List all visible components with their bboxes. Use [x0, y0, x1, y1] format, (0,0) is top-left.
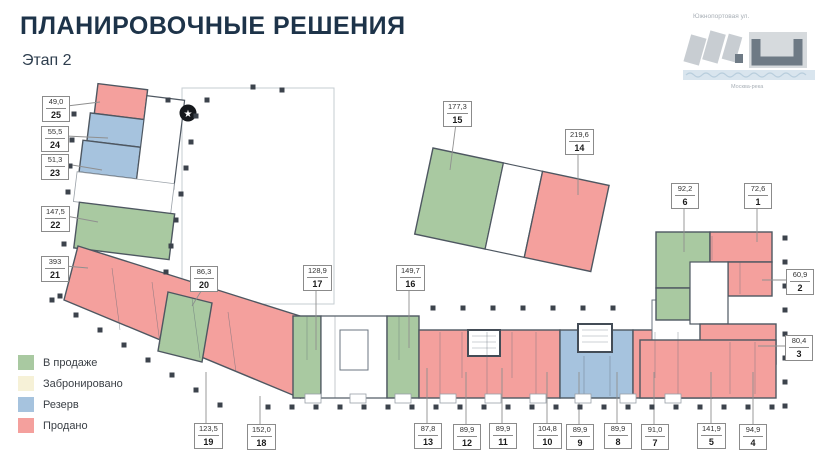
unit-callout-6[interactable]: 92,26: [671, 183, 699, 209]
column-dot: [554, 405, 559, 410]
column-dot: [386, 405, 391, 410]
legend-swatch: [18, 418, 34, 433]
column-dot: [338, 405, 343, 410]
column-dot: [458, 405, 463, 410]
column-dot: [169, 244, 174, 249]
unit-callout-18[interactable]: 152,018: [247, 424, 276, 450]
balcony: [350, 394, 366, 403]
unit-callout-25[interactable]: 49,025: [42, 96, 70, 122]
unit-region-2[interactable]: [728, 262, 772, 296]
column-dot: [66, 190, 71, 195]
unit-number: 5: [701, 436, 722, 447]
unit-callout-4[interactable]: 94,94: [739, 424, 767, 450]
column-dot: [251, 85, 256, 90]
unit-area: 177,3: [447, 103, 468, 114]
left-wing: [68, 82, 189, 259]
column-dot: [179, 192, 184, 197]
column-dot: [205, 98, 210, 103]
column-dot: [783, 236, 788, 241]
column-dot: [783, 404, 788, 409]
unit-number: 3: [789, 348, 809, 359]
unit-area: 87,8: [418, 425, 438, 436]
column-dot: [783, 260, 788, 265]
column-dot: [578, 405, 583, 410]
balcony: [440, 394, 456, 403]
location-minimap: Южнопортовая ул. Москва-река: [683, 4, 815, 92]
column-dot: [58, 294, 63, 299]
column-dot: [174, 218, 179, 223]
unit-number: 19: [198, 436, 219, 447]
compass-icon: ★: [180, 105, 197, 122]
column-dot: [783, 380, 788, 385]
unit-region-20[interactable]: [158, 292, 212, 362]
legend-item: Продано: [18, 415, 123, 436]
column-dot: [551, 306, 556, 311]
legend-swatch: [18, 355, 34, 370]
column-dot: [166, 98, 171, 103]
unit-number: 7: [645, 437, 665, 448]
unit-area: 60,9: [790, 271, 810, 282]
unit-region-16[interactable]: [387, 316, 419, 398]
unit-callout-24[interactable]: 55,524: [41, 126, 69, 152]
unit-region-4-5[interactable]: [640, 340, 776, 398]
balcony: [305, 394, 321, 403]
stairwell: [578, 324, 612, 352]
unit-number: 2: [790, 282, 810, 293]
column-dot: [194, 388, 199, 393]
unit-area: 80,4: [789, 337, 809, 348]
unit-callout-23[interactable]: 51,323: [41, 154, 69, 180]
column-dot: [184, 166, 189, 171]
column-dot: [218, 403, 223, 408]
column-dot: [62, 242, 67, 247]
building-unit-marker: [735, 54, 743, 63]
unit-number: 23: [45, 167, 65, 178]
column-dot: [461, 306, 466, 311]
unit-callout-13[interactable]: 87,813: [414, 423, 442, 449]
stairwell: [468, 330, 500, 356]
unit-number: 10: [537, 436, 558, 447]
unit-area: 152,0: [251, 426, 272, 437]
unit-callout-11[interactable]: 89,911: [489, 423, 517, 449]
column-dot: [530, 405, 535, 410]
unit-number: 21: [45, 269, 65, 280]
river-label: Москва-река: [731, 84, 764, 90]
column-dot: [74, 313, 79, 318]
unit-area: 55,5: [45, 128, 65, 139]
unit-callout-16[interactable]: 149,716: [396, 265, 425, 291]
unit-callout-21[interactable]: 39321: [41, 256, 69, 282]
unit-area: 393: [45, 258, 65, 269]
unit-callout-8[interactable]: 89,98: [604, 423, 632, 449]
legend-swatch: [18, 376, 34, 391]
unit-number: 25: [46, 109, 66, 120]
column-dot: [70, 138, 75, 143]
column-dot: [290, 405, 295, 410]
column-dot: [611, 306, 616, 311]
unit-number: 8: [608, 436, 628, 447]
legend-label: В продаже: [43, 357, 97, 369]
unit-number: 22: [45, 219, 66, 230]
column-dot: [581, 306, 586, 311]
column-dot: [362, 405, 367, 410]
column-dot: [431, 306, 436, 311]
unit-callout-3[interactable]: 80,43: [785, 335, 813, 361]
column-dot: [626, 405, 631, 410]
column-dot: [434, 405, 439, 410]
unit-area: 123,5: [198, 425, 219, 436]
building-cluster-left: [683, 30, 742, 65]
unit-area: 94,9: [743, 426, 763, 437]
column-dot: [698, 405, 703, 410]
column-dot: [674, 405, 679, 410]
svg-text:★: ★: [184, 109, 193, 120]
balcony: [530, 394, 546, 403]
unit-callout-20[interactable]: 86,320: [190, 266, 218, 292]
legend-swatch: [18, 397, 34, 412]
unit-number: 1: [748, 196, 768, 207]
column-dot: [98, 328, 103, 333]
column-dot: [189, 140, 194, 145]
unit-area: 72,6: [748, 185, 768, 196]
column-dot: [746, 405, 751, 410]
unit-area: 51,3: [45, 156, 65, 167]
unit-number: 16: [400, 278, 421, 289]
unit-number: 18: [251, 437, 272, 448]
unit-callout-17[interactable]: 128,917: [303, 265, 332, 291]
column-dot: [491, 306, 496, 311]
balcony: [395, 394, 411, 403]
unit-area: 89,9: [457, 426, 477, 437]
unit-area: 89,9: [493, 425, 513, 436]
legend-item: Забронировано: [18, 373, 123, 394]
status-legend: В продажеЗабронированоРезервПродано: [18, 352, 123, 436]
balcony: [575, 394, 591, 403]
column-dot: [410, 405, 415, 410]
balcony: [665, 394, 681, 403]
legend-label: Продано: [43, 420, 88, 432]
unit-number: 4: [743, 437, 763, 448]
legend-item: В продаже: [18, 352, 123, 373]
column-dot: [506, 405, 511, 410]
column-dot: [770, 405, 775, 410]
column-dot: [50, 298, 55, 303]
legend-label: Забронировано: [43, 378, 123, 390]
unit-callout-10[interactable]: 104,810: [533, 423, 562, 449]
unit-number: 15: [447, 114, 468, 125]
unit-callout-7[interactable]: 91,07: [641, 424, 669, 450]
unit-number: 20: [194, 279, 214, 290]
legend-label: Резерв: [43, 399, 79, 411]
column-dot: [482, 405, 487, 410]
page: ПЛАНИРОВОЧНЫЕ РЕШЕНИЯ Этап 2 Южнопортова…: [0, 0, 820, 459]
unit-callout-1[interactable]: 72,61: [744, 183, 772, 209]
balcony: [620, 394, 636, 403]
column-dot: [280, 88, 285, 93]
unit-callout-14[interactable]: 219,614: [565, 129, 594, 155]
unit-number: 6: [675, 196, 695, 207]
unit-area: 92,2: [675, 185, 695, 196]
column-dot: [650, 405, 655, 410]
column-dot: [164, 270, 169, 275]
unit-area: 141,9: [701, 425, 722, 436]
unit-area: 91,0: [645, 426, 665, 437]
unit-number: 11: [493, 436, 513, 447]
column-dot: [602, 405, 607, 410]
unit-number: 24: [45, 139, 65, 150]
column-dot: [170, 373, 175, 378]
unit-callout-19[interactable]: 123,519: [194, 423, 223, 449]
unit-area: 86,3: [194, 268, 214, 279]
balcony: [485, 394, 501, 403]
street-label: Южнопортовая ул.: [693, 13, 749, 20]
stairwell: [340, 330, 368, 370]
unit-area: 89,9: [608, 425, 628, 436]
unit-region-6b[interactable]: [656, 288, 690, 320]
unit-area: 147,5: [45, 208, 66, 219]
unit-area: 219,6: [569, 131, 590, 142]
column-dot: [314, 405, 319, 410]
column-dot: [122, 343, 127, 348]
stair-core-right: [690, 262, 728, 324]
unit-callout-15[interactable]: 177,315: [443, 101, 472, 127]
unit-number: 17: [307, 278, 328, 289]
right-wing: [640, 232, 776, 398]
column-dot: [722, 405, 727, 410]
unit-area: 128,9: [307, 267, 328, 278]
unit-region-1[interactable]: [710, 232, 772, 262]
middle-wing: [415, 148, 609, 272]
column-dot: [146, 358, 151, 363]
unit-number: 13: [418, 436, 438, 447]
column-dot: [783, 308, 788, 313]
unit-area: 149,7: [400, 267, 421, 278]
legend-item: Резерв: [18, 394, 123, 415]
unit-callout-22[interactable]: 147,522: [41, 206, 70, 232]
column-dot: [521, 306, 526, 311]
unit-callout-5[interactable]: 141,95: [697, 423, 726, 449]
column-dot: [266, 405, 271, 410]
unit-callout-12[interactable]: 89,912: [453, 424, 481, 450]
unit-area: 104,8: [537, 425, 558, 436]
unit-callout-9[interactable]: 89,99: [566, 424, 594, 450]
unit-number: 14: [569, 142, 590, 153]
unit-number: 12: [457, 437, 477, 448]
column-dot: [72, 112, 77, 117]
unit-area: 89,9: [570, 426, 590, 437]
column-dot: [194, 114, 199, 119]
unit-area: 49,0: [46, 98, 66, 109]
unit-number: 9: [570, 437, 590, 448]
unit-callout-2[interactable]: 60,92: [786, 269, 814, 295]
